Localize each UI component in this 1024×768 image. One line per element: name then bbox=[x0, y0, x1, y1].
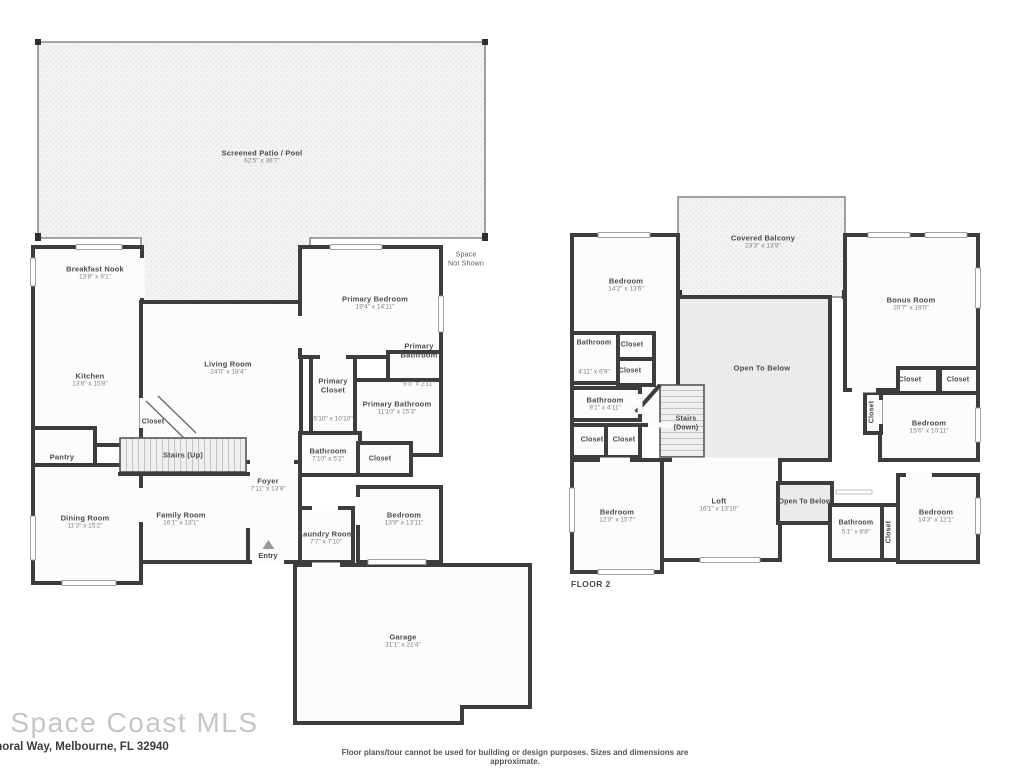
entry-arrow-icon bbox=[262, 540, 274, 549]
label-closet-c: Closet bbox=[581, 437, 604, 446]
label-closet-stairs: Closet bbox=[142, 419, 165, 428]
label-bedroom1: Bedroom 13'9" x 13'11" bbox=[385, 510, 424, 528]
label-closet-f: Closet bbox=[947, 377, 970, 386]
label-covered-balcony: Covered Balcony 23'3" x 13'9" bbox=[731, 233, 795, 251]
label-closet-hall: Closet bbox=[369, 456, 392, 465]
label-bath-hall-f2: Bathroom 9'1" x 4'11" bbox=[586, 395, 623, 413]
floorplan-page: Screened Patio / Pool 62'5" x 36'7" Brea… bbox=[0, 0, 1024, 768]
property-address: moral Way, Melbourne, FL 32940 bbox=[0, 741, 169, 753]
label-bathroom1: Bathroom 7'10" x 5'2" bbox=[309, 446, 346, 464]
label-bedroom-bl: Bedroom 12'0" x 15'7" bbox=[599, 507, 635, 525]
label-closet-e: Closet bbox=[899, 377, 922, 386]
label-foyer: Foyer 7'11" x 13'9" bbox=[250, 476, 285, 494]
label-entry: Entry bbox=[258, 551, 277, 560]
label-space-not-shown: Space Not Shown bbox=[448, 231, 484, 289]
floorplan-drawing bbox=[0, 0, 1024, 768]
entry-marker: Entry bbox=[258, 540, 277, 560]
label-bonus-room: Bonus Room 20'7" x 19'0" bbox=[887, 295, 936, 313]
label-family: Family Room 16'1" x 13'1" bbox=[156, 510, 205, 528]
mls-watermark: e Space Coast MLS bbox=[0, 707, 259, 739]
floor2-tag: FLOOR 2 bbox=[571, 579, 611, 589]
label-bath-br: Bathroom 5'1" x 8'8" bbox=[839, 520, 874, 537]
label-living: Living Room 24'0" x 18'4" bbox=[204, 359, 252, 377]
label-closet-v2: Closet bbox=[869, 401, 878, 424]
label-open-below: Open To Below bbox=[734, 363, 791, 372]
label-closet-a: Closet bbox=[621, 342, 644, 351]
label-bedroom-tl: Bedroom 14'2" x 13'6" bbox=[608, 276, 644, 294]
label-open-below-small: Open To Below bbox=[778, 499, 831, 508]
label-laundry: Laundry Room 7'7" x 7'10" bbox=[298, 529, 353, 547]
label-primary-bath-small: Primary Bathroom 6'5" x 2'11" bbox=[400, 322, 437, 409]
label-closet-v1: Closet bbox=[886, 521, 895, 544]
label-dining: Dining Room 11'3" x 15'2" bbox=[61, 513, 110, 531]
label-pantry: Pantry bbox=[50, 452, 75, 461]
label-primary-bath: Primary Bathroom 11'10" x 15'3" bbox=[363, 399, 432, 417]
label-primary-bedroom: Primary Bedroom 19'4" x 14'11" bbox=[342, 294, 408, 312]
label-kitchen: Kitchen 13'8" x 15'8" bbox=[72, 371, 108, 389]
label-screened-patio: Screened Patio / Pool 62'5" x 36'7" bbox=[222, 148, 303, 166]
label-bedroom-mr: Bedroom 15'6" x 10'11" bbox=[910, 418, 949, 436]
label-loft: Loft 16'1" x 13'10" bbox=[699, 496, 738, 514]
label-closet-d: Closet bbox=[613, 437, 636, 446]
label-closet-b: Closet bbox=[619, 368, 642, 377]
label-garage: Garage 31'1" x 21'4" bbox=[385, 632, 421, 650]
label-breakfast-nook: Breakfast Nook 13'8" x 9'1" bbox=[66, 264, 124, 282]
label-bedroom-br: Bedroom 14'3" x 12'1" bbox=[918, 507, 954, 525]
label-stairs-down: Stairs (Down) bbox=[674, 395, 699, 453]
disclaimer-text: Floor plans/tour cannot be used for buil… bbox=[334, 748, 696, 766]
label-primary-closet: Primary Closet 5'10" x 10'10" bbox=[313, 357, 352, 444]
label-stairs-up: Stairs (Up) bbox=[163, 450, 203, 459]
label-bath-small-f2: Bathroom 4'11" x 6'9" bbox=[577, 320, 612, 397]
